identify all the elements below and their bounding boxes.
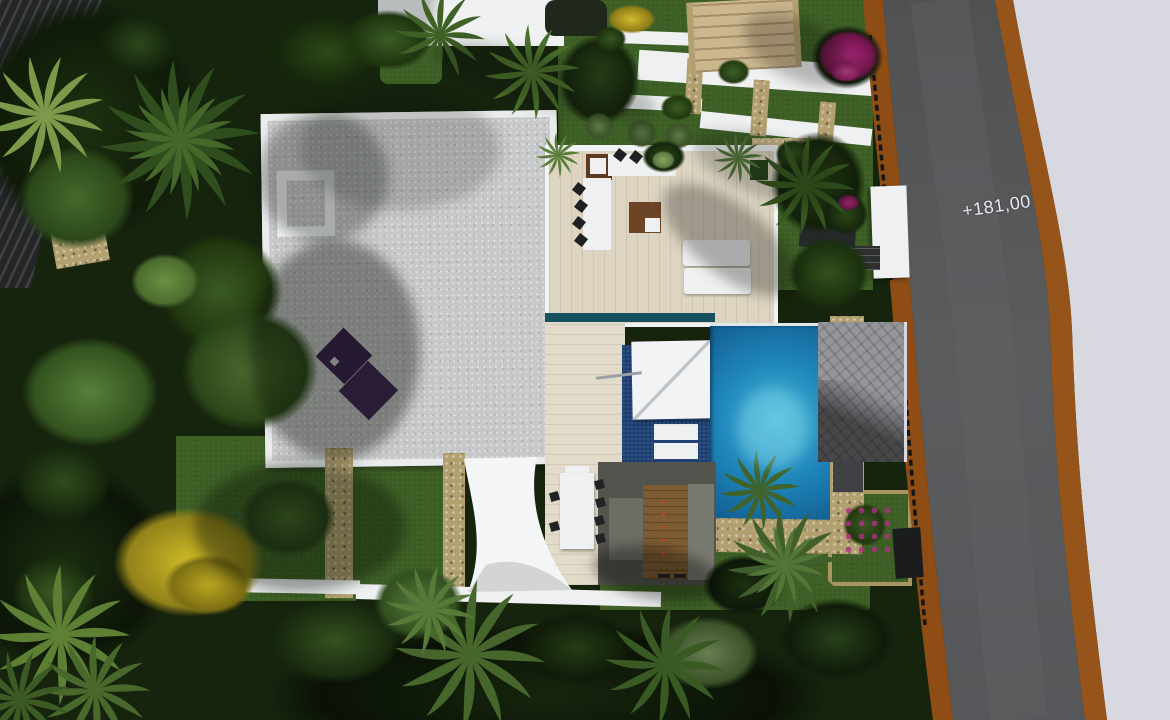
pool-light-caustic [738,388,808,468]
aerial-render-canvas: +181,00 [0,0,1170,720]
tree-shadow-on-roof-soft [300,90,500,210]
entrance-steps [846,246,880,270]
roadside-planter-dark [892,527,923,579]
driveway-shadow [818,380,904,462]
shadow-on-lawn [195,462,405,592]
tree-shadow-on-roof [250,240,420,460]
